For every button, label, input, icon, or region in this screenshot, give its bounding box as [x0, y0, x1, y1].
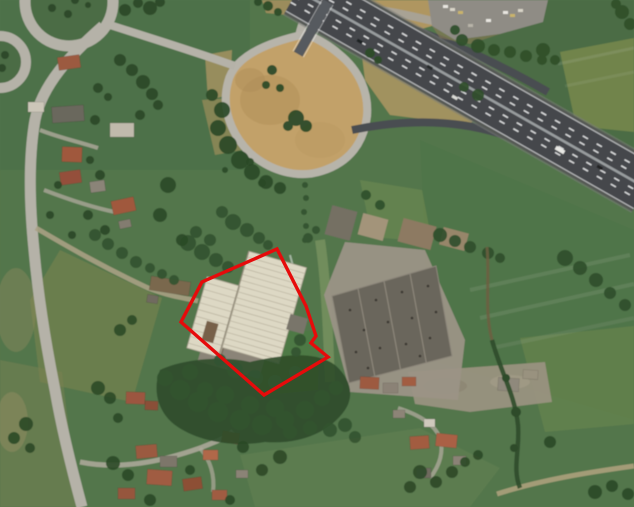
terrain-layer	[0, 0, 634, 507]
secondary-roundabout	[0, 36, 26, 88]
satellite-map-canvas	[0, 0, 634, 507]
satellite-image	[0, 0, 634, 507]
